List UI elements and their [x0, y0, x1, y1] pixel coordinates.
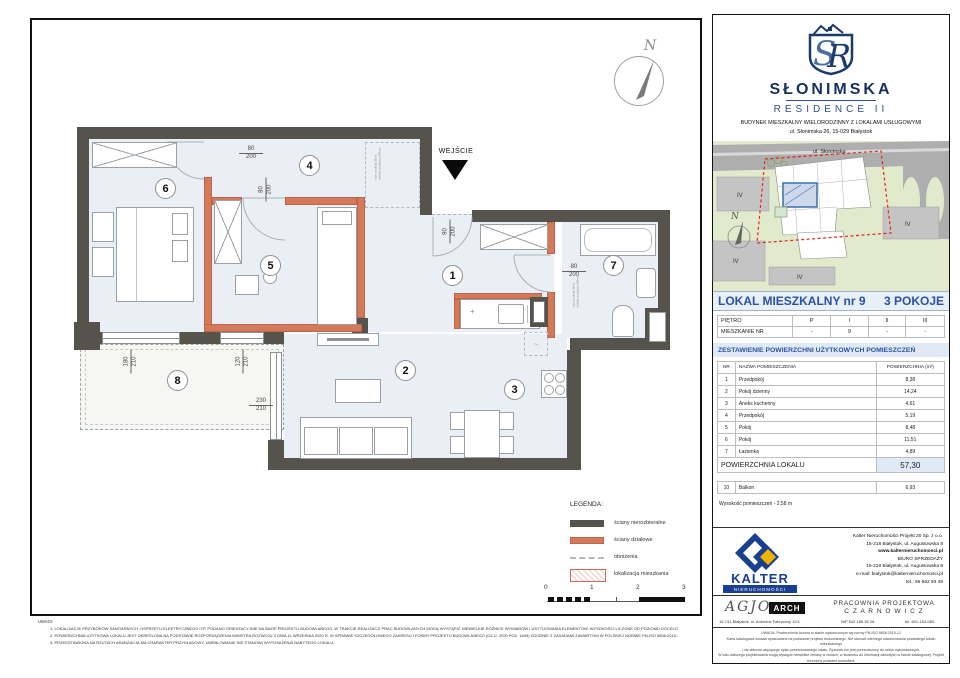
- bathtub-inner: [584, 228, 652, 252]
- room-number-6: 6: [155, 178, 176, 199]
- table-row: 1 Przedpokój 8,38: [718, 374, 944, 386]
- floor-table: PIĘTRO P I II III MIESZKANIE NR - 9 - -: [717, 315, 945, 338]
- kitchen-sink: [498, 304, 524, 324]
- catalog-card: + ~ 80 200 80 200 90 200: [0, 0, 960, 678]
- divider: [713, 627, 949, 628]
- kalter-sub: NIERUCHOMOŚCI: [723, 585, 797, 593]
- dining-table: [464, 410, 500, 458]
- dim-door-room6: 80 200: [239, 146, 263, 161]
- apartment-cell: -: [793, 327, 831, 338]
- divider: [713, 595, 949, 596]
- area-section-title: ZESTAWIENIE POWIERZCHNI UŻYTKOWYCH POMIE…: [713, 343, 949, 357]
- scale-tick-label: 1: [590, 584, 594, 591]
- kalter-contact: Kalter Nieruchomości Projekt 20 Sp. z o.…: [813, 533, 943, 586]
- window-120: [220, 332, 264, 344]
- agjo-name: AGJO: [725, 599, 771, 615]
- bed-pillow: [172, 240, 188, 262]
- fine-print-line: Karta katalogowa została opracowana na p…: [716, 637, 946, 648]
- burner: [544, 385, 554, 395]
- brand-subtitle: BUDYNEK MIESZKALNY WIELORODZINNY Z LOKAL…: [713, 120, 949, 126]
- legend-label: ściany nierozbieralne: [614, 520, 666, 526]
- partition-wall: [204, 324, 362, 332]
- dim-door-room5: 80 200: [259, 178, 274, 202]
- partition-wall: [204, 177, 212, 332]
- scale-segment: [575, 597, 581, 602]
- balcony-row: 10 Balkon 6,93: [717, 481, 945, 494]
- floor-row-label: PIĘTRO: [718, 316, 793, 327]
- floor-plan-frame: + ~ 80 200 80 200 90 200: [30, 18, 702, 616]
- kalter-line: tel.: 85 662 93 48: [813, 579, 943, 587]
- apartment-cell: -: [906, 327, 944, 338]
- burner: [555, 373, 565, 383]
- chair: [498, 436, 514, 454]
- area-table: NR NAZWA POMIESZCZENIA POWIERZCHNIA (m²)…: [717, 361, 945, 473]
- wall-segment: [472, 210, 670, 222]
- shaft-inner: [533, 301, 545, 323]
- tv: [327, 338, 369, 341]
- coffee-table: [335, 379, 381, 403]
- compass-needle-icon: [614, 48, 674, 108]
- legend-swatch-solid-wall: [570, 520, 604, 527]
- burner: [555, 385, 565, 395]
- pracownia-line1: PRACOWNIA PROJEKTOWA: [823, 600, 945, 607]
- toilet: [612, 305, 634, 337]
- wardrobe: [92, 142, 177, 168]
- kalter-line: www.kalternieruchomosci.pl: [813, 548, 943, 556]
- height-note: Wysokość pomieszczeń - 2,58 m: [719, 501, 792, 507]
- door-arc-room5: [242, 197, 286, 241]
- scale-segment: [548, 597, 554, 602]
- brand-monogram-icon: S R: [799, 21, 863, 79]
- site-block-label: IV: [737, 193, 743, 199]
- site-north-label: N: [730, 212, 740, 222]
- pracownia-nip: NIP 542 186 35 28: [841, 619, 874, 624]
- total-row: POWIERZCHNIA LOKALU 57,30: [718, 458, 944, 473]
- brand-name: SŁONIMSKA: [713, 81, 949, 99]
- chair: [498, 412, 514, 430]
- apartment-row-label: MIESZKANIE NR: [718, 327, 793, 338]
- site-street-label: ul. Słonimska: [813, 149, 847, 155]
- pracownia-tel: tel. 601-154-080: [905, 619, 934, 624]
- table-row: 4 Przedpokój 5,19: [718, 410, 944, 422]
- agjo-address: 15-741 Białystok, ul. Antoniuk Fabryczny…: [719, 619, 800, 624]
- table-row: 3 Aneks kuchenny 4,61: [718, 398, 944, 410]
- total-value: 57,30: [877, 458, 944, 473]
- unit-title-row: LOKAL MIESZKALNY nr 9 3 POKOJE: [713, 291, 949, 311]
- sofa-cushion: [374, 427, 408, 455]
- table-row: 2 Pokój dzienny 14,24: [718, 386, 944, 398]
- site-block-label: IV: [733, 259, 739, 265]
- kalter-line: e-mail: bialystok@kalternieruchomosci.pl: [813, 571, 943, 579]
- site-block-label: IV: [797, 275, 803, 281]
- room-number-5: 5: [260, 255, 281, 276]
- fine-print: UWAGA: Powierzchnia liczona w stanie wyk…: [716, 631, 946, 665]
- wall-segment: [268, 440, 284, 470]
- bed-pillow: [322, 211, 352, 225]
- info-panel: S R SŁONIMSKA RESIDENCE II BUDYNEK MIESZ…: [712, 14, 950, 664]
- wall-segment: [567, 350, 581, 470]
- brand-line2: RESIDENCE II: [713, 104, 949, 115]
- nightstand: [92, 212, 114, 242]
- counter-plus: +: [470, 307, 475, 316]
- wall-segment: [270, 458, 581, 470]
- door-annotation: wys. podłogi 28cm światło przejścia 200c…: [374, 148, 381, 180]
- fine-print-line: W toku dalszego projektowania mogą wystą…: [716, 653, 946, 664]
- legend-label: obniżenia: [614, 554, 638, 560]
- divider: [713, 527, 949, 528]
- plan-notes: UWAGI: 1. LOKALIZACJE PRZYBORÓW SANITARN…: [38, 618, 678, 646]
- brand-underline: [786, 100, 876, 101]
- scale-segment: [584, 597, 590, 602]
- room-number-4: 4: [299, 155, 320, 176]
- partition-wall: [547, 222, 555, 254]
- unit-type: 3 POKOJE: [884, 294, 944, 308]
- table-row: 6 Pokój 11,51: [718, 434, 944, 446]
- kalter-name: KALTER: [721, 571, 799, 586]
- wall-segment: [264, 332, 284, 344]
- kalter-logo-icon: [735, 533, 781, 573]
- legend-title: LEGENDA:: [570, 501, 603, 508]
- legend-swatch-partition-wall: [570, 537, 604, 544]
- table-row: 7 Łazienka 4,89: [718, 446, 944, 458]
- scale-segment: [557, 597, 563, 602]
- scale-tick-label: 3: [682, 584, 686, 591]
- site-block-label: IV: [905, 222, 911, 228]
- legend-label: lokalizacja mieszkania: [614, 571, 668, 577]
- kalter-line: BIURO SPRZEDAŻY: [813, 556, 943, 564]
- bed-pillow: [172, 213, 188, 235]
- room-number-1: 1: [442, 265, 463, 286]
- legend-swatch-ceiling-drop: [570, 557, 604, 559]
- balcony-door-window: [270, 352, 282, 440]
- agjo-arch-badge: ARCH: [769, 602, 805, 614]
- dim-window-left: 180 210: [124, 350, 139, 374]
- brand-address: ul. Słonimska 26, 15-029 Białystok: [713, 129, 949, 135]
- sofa-cushion: [304, 427, 338, 455]
- scale-tick-label: 2: [636, 584, 640, 591]
- legend-swatch-unit-location: [570, 569, 606, 582]
- floor-cell: II: [869, 316, 907, 327]
- apartment-cell: -: [869, 327, 907, 338]
- room-number-7: 7: [603, 255, 624, 276]
- legend-label: ściany działowe: [614, 537, 653, 543]
- scale-tick-label: 0: [544, 584, 548, 591]
- compass-north-label: N: [644, 38, 656, 54]
- nightstand: [92, 247, 114, 277]
- note-item: 3. PRZEDSTAWIONA NA RZUTACH ARANŻACJA MA…: [38, 639, 678, 646]
- dim-window-mid: 120 210: [236, 350, 251, 374]
- wall-segment: [77, 332, 102, 344]
- pracownia-line2: C Z A R N O W I C Z: [823, 608, 945, 615]
- room-number-8: 8: [167, 370, 188, 391]
- window-180: [102, 332, 180, 344]
- wardrobe: [214, 200, 242, 264]
- wardrobe: [480, 224, 548, 250]
- floor-cell: I: [831, 316, 869, 327]
- dim-door-entry: 90 200: [443, 220, 458, 244]
- entry-threshold: [432, 214, 472, 215]
- scale-segment-solid: [639, 597, 685, 602]
- kalter-line: Kalter Nieruchomości Projekt 20 Sp. z o.…: [813, 533, 943, 541]
- apartment-cell: 9: [831, 327, 869, 338]
- side-table: [235, 275, 259, 295]
- col-header-nr: NR: [718, 362, 736, 374]
- site-plan: N ul. Słonimska IV IV IV IV: [713, 141, 949, 291]
- sofa-cushion: [339, 427, 373, 455]
- unit-title: LOKAL MIESZKALNY nr 9: [718, 294, 866, 308]
- entrance-label: WEJŚCIE: [428, 148, 484, 155]
- ceiling-drop-zone: ~: [524, 332, 548, 356]
- col-header-area: POWIERZCHNIA (m²): [877, 362, 944, 374]
- washer: [649, 312, 666, 342]
- door-annotation: wys. podłogi 28cm światło przejścia 200c…: [572, 276, 579, 308]
- partition-wall: [547, 292, 555, 338]
- svg-text:R: R: [826, 37, 851, 75]
- col-header-name: NAZWA POMIESZCZENIA: [736, 362, 877, 374]
- entrance-arrow: [442, 160, 468, 180]
- note-item: 1. LOKALIZACJE PRZYBORÓW SANITARNYCH, OS…: [38, 625, 678, 632]
- table-row: 5 Pokój 8,48: [718, 422, 944, 434]
- dim-balcony-door: 230 210: [249, 398, 273, 413]
- wall-segment: [77, 127, 89, 350]
- notes-title: UWAGI:: [38, 618, 678, 625]
- scale-segment: [566, 597, 572, 602]
- kalter-line: 15-218 Białystok, ul. Augustowska 8: [813, 541, 943, 549]
- wall-segment: [180, 332, 220, 344]
- floor-cell: P: [793, 316, 831, 327]
- bed-fold-line: [136, 208, 137, 301]
- partition-wall: [285, 197, 357, 205]
- kalter-line: 15-218 Białystok, ul. Augustowska 8: [813, 563, 943, 571]
- note-item: 2. POWIERZCHNIA UŻYTKOWA LOKALU JEST OKR…: [38, 632, 678, 639]
- partition-wall: [357, 197, 365, 318]
- door-arc-bathroom: [513, 254, 552, 293]
- sink: [636, 268, 656, 298]
- burner: [544, 373, 554, 383]
- room-number-3: 3: [504, 379, 525, 400]
- total-label: POWIERZCHNIA LOKALU: [718, 458, 877, 473]
- floor-cell: III: [906, 316, 944, 327]
- scale-midtick: [616, 597, 617, 602]
- wall-segment: [77, 127, 432, 139]
- room-number-2: 2: [395, 360, 416, 381]
